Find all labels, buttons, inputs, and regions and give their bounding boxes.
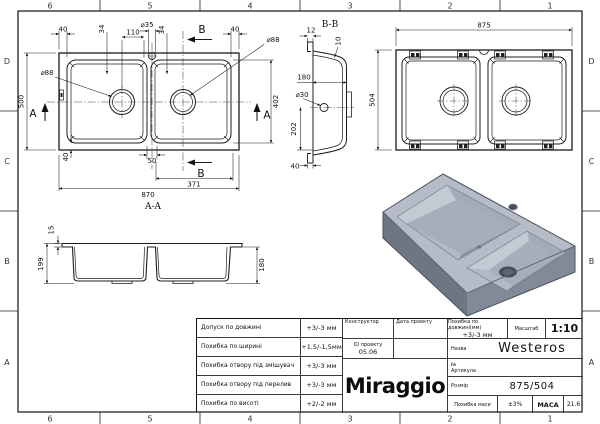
col-label: 6 [47, 415, 52, 424]
section-bb-view: B-B 12 10 180 ⌀30 202 40 [290, 20, 354, 171]
col-label: 4 [247, 2, 252, 11]
row-label: A [4, 358, 10, 367]
section-aa-label: A-A [144, 202, 162, 212]
dimension-lines [375, 27, 572, 150]
section-bb-title: B-B [322, 20, 339, 30]
dim-199: 199 [37, 257, 45, 270]
tolerance-value: +3/-3 мм [301, 357, 343, 376]
col-label: 3 [347, 2, 352, 11]
row-label: A [589, 358, 595, 367]
row-label: C [589, 157, 595, 166]
title-block: Допуск по довжині +3/-3 мм Похибка по ши… [196, 318, 582, 412]
brand-logo: Miraggio [343, 359, 448, 413]
tolerance-label: Похибка отвору під змішувач [197, 357, 301, 376]
dim-504: 504 [369, 93, 377, 107]
row-label: B [4, 257, 10, 266]
article-label: № Артикула [448, 362, 481, 374]
tolerance-label: Допуск по довжині [197, 319, 301, 338]
dim-110: 110 [126, 29, 139, 37]
dim-500: 500 [18, 95, 26, 108]
tolerance-label: Похибка отвору під перелив [197, 376, 301, 395]
section-aa-labels: 15 199 180 [37, 226, 266, 272]
project-id-value: 05.06 [359, 348, 378, 356]
overflow-hole-3d [476, 245, 481, 249]
dim-10: 10 [335, 37, 343, 46]
dim-40-top-right: 40 [231, 26, 240, 34]
dim-d35: ⌀35 [140, 21, 153, 29]
dim-40-bottom: 40 [62, 153, 70, 162]
bottom-view: 875 504 [369, 22, 573, 151]
tolerance-value: +3/-3 мм [301, 376, 343, 395]
row-label: D [588, 57, 594, 66]
mass-tolerance-value: ±3% [498, 396, 533, 413]
col-label: 2 [447, 2, 452, 11]
mass-label: МАСА [533, 396, 564, 413]
row-label: D [4, 57, 10, 66]
dim-40: 40 [291, 163, 300, 171]
tolerance-value: +3/-3 мм [301, 319, 343, 338]
dim-d88-right: ⌀88 [266, 36, 279, 44]
dim-50: 50 [148, 157, 157, 165]
constructor-label: Конструктор [343, 319, 394, 339]
size-label: Розмір [448, 383, 481, 389]
dim-371: 371 [187, 181, 200, 189]
name-label: Назва [448, 346, 481, 352]
sink-outline [59, 53, 239, 150]
mass-value: 21.6 [564, 396, 583, 413]
col-label: 5 [147, 415, 152, 424]
empty-cell [394, 339, 448, 359]
length-tolerance-cell: Похибка по довжині(мм) +3/-3 мм [448, 319, 508, 339]
size-row: Розмір 875/504 [448, 377, 583, 396]
bowl-corner-ticks [70, 63, 228, 140]
project-date-label: Дата проекту [394, 319, 448, 339]
faucet-hole-3d [509, 204, 518, 210]
col-label: 1 [547, 2, 552, 11]
dim-870: 870 [141, 191, 154, 199]
tolerance-value: +1,5/-1,5мм [301, 338, 343, 357]
dim-180: 180 [258, 258, 266, 271]
cut-label-b-top: B [198, 24, 205, 36]
dim-875: 875 [477, 22, 490, 30]
name-value: Westeros [481, 341, 583, 356]
faucet-notch [480, 50, 489, 55]
scale-label: Масштаб [508, 319, 546, 339]
dim-402: 402 [272, 95, 280, 108]
dim-12: 12 [307, 27, 316, 35]
dim-34-right: 34 [158, 25, 166, 34]
bottom-view-labels: 875 504 [369, 22, 491, 107]
bowl-corner-ticks [405, 60, 564, 142]
dim-202: 202 [290, 122, 298, 135]
row-label: B [589, 257, 595, 266]
col-label: 3 [347, 415, 352, 424]
cut-label-b-bottom: B [197, 168, 204, 180]
name-row: Назва Westeros [448, 339, 583, 359]
cut-label-a-right: A [263, 110, 271, 122]
project-id-cell: ID проекту 05.06 [343, 339, 394, 359]
tolerance-value: +2/-2 мм [301, 395, 343, 413]
dim-40-top-left: 40 [59, 26, 68, 34]
col-label: 4 [247, 415, 252, 424]
isometric-render [383, 174, 575, 316]
article-row: № Артикула [448, 359, 583, 377]
top-view: 40 34 110 ⌀35 34 B 40 ⌀88 ⌀88 500 402 A … [18, 21, 281, 212]
cut-label-a-left: A [29, 108, 37, 120]
col-label: 5 [147, 2, 152, 11]
tolerance-label: Похибка по висоті [197, 395, 301, 413]
mounting-clips [410, 51, 554, 149]
dim-180: 180 [297, 74, 310, 82]
length-tolerance-label: Похибка по довжині(мм) [448, 319, 507, 331]
mass-tolerance-label: Похибка маси [448, 396, 498, 413]
section-aa-view: 15 199 180 [37, 226, 266, 284]
dimension-lines [297, 36, 347, 169]
col-label: 1 [547, 415, 552, 424]
dim-d88-left: ⌀88 [40, 69, 53, 77]
size-value: 875/504 [481, 381, 583, 392]
col-label: 2 [447, 415, 452, 424]
length-tolerance-value: +3/-3 мм [462, 331, 492, 339]
col-label: 6 [47, 2, 52, 11]
row-label: C [4, 157, 10, 166]
scale-value: 1:10 [546, 319, 583, 339]
dim-15: 15 [48, 226, 56, 235]
dim-d30: ⌀30 [295, 91, 308, 99]
drawing-sheet: { "frame": { "columns": ["6", "5", "4", … [0, 0, 600, 424]
section-bb-labels: B-B 12 10 180 ⌀30 202 40 [290, 20, 343, 171]
dim-34-left: 34 [98, 24, 106, 33]
tolerance-label: Похибка по ширині [197, 338, 301, 357]
